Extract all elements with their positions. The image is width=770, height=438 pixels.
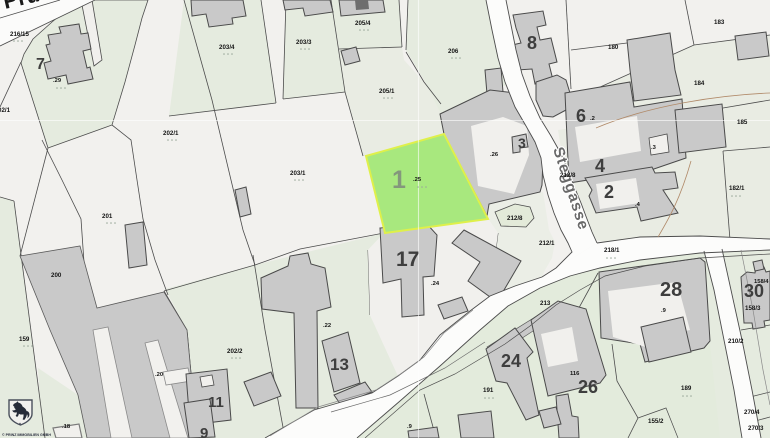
svg-text:.26: .26 [490, 152, 499, 158]
svg-text:.2: .2 [590, 116, 595, 122]
svg-text:216/15: 216/15 [10, 31, 29, 38]
svg-text:4: 4 [595, 156, 605, 176]
svg-text:2: 2 [604, 182, 614, 202]
svg-text:.3: .3 [651, 145, 657, 151]
svg-text:201: 201 [102, 213, 113, 220]
svg-text:02/1: 02/1 [0, 107, 11, 114]
svg-text:158/4: 158/4 [754, 279, 769, 285]
svg-text:212/8: 212/8 [560, 172, 576, 179]
svg-text:8: 8 [527, 33, 537, 53]
svg-text:270/4: 270/4 [744, 409, 760, 416]
svg-text:200: 200 [51, 272, 62, 279]
svg-text:.18: .18 [62, 424, 71, 430]
svg-text:205/1: 205/1 [379, 88, 395, 95]
svg-text:6: 6 [576, 106, 586, 126]
svg-text:© PRINZ IMMOBILIEN GMBH: © PRINZ IMMOBILIEN GMBH [2, 433, 51, 437]
svg-text:.9: .9 [407, 424, 413, 430]
svg-text:183: 183 [714, 19, 725, 26]
svg-text:.25: .25 [413, 177, 422, 183]
svg-text:189: 189 [681, 385, 692, 392]
svg-text:155/2: 155/2 [648, 418, 664, 425]
svg-text:218/1: 218/1 [604, 247, 620, 254]
svg-text:13: 13 [330, 355, 349, 374]
svg-text:11: 11 [208, 394, 224, 411]
svg-text:.9: .9 [661, 308, 667, 314]
svg-text:.24: .24 [431, 281, 440, 287]
svg-text:203/3: 203/3 [296, 39, 312, 46]
svg-text:202/1: 202/1 [163, 130, 179, 137]
svg-text:206: 206 [448, 48, 459, 55]
svg-text:17: 17 [396, 248, 419, 271]
svg-text:1: 1 [392, 166, 406, 194]
svg-text:28: 28 [660, 279, 682, 301]
svg-text:116: 116 [570, 371, 580, 377]
svg-text:159: 159 [19, 336, 30, 343]
svg-text:203/4: 203/4 [219, 44, 235, 51]
svg-text:26: 26 [578, 377, 598, 397]
svg-text:213: 213 [540, 300, 551, 307]
svg-text:.20: .20 [155, 372, 163, 378]
svg-text:203/1: 203/1 [290, 170, 306, 177]
svg-text:212/1: 212/1 [539, 240, 555, 247]
svg-text:212/8: 212/8 [507, 215, 523, 222]
svg-text:185: 185 [737, 119, 748, 126]
svg-text:182/1: 182/1 [729, 185, 745, 192]
svg-text:205/4: 205/4 [355, 20, 371, 27]
svg-text:202/2: 202/2 [227, 348, 243, 355]
svg-text:7: 7 [36, 56, 45, 73]
svg-text:24: 24 [501, 351, 521, 371]
svg-text:9: 9 [200, 425, 208, 438]
svg-text:180: 180 [608, 44, 619, 51]
svg-text:270/3: 270/3 [748, 425, 764, 432]
svg-text:.29: .29 [53, 78, 62, 84]
svg-text:184: 184 [694, 80, 705, 87]
svg-text:.4: .4 [635, 202, 641, 208]
svg-text:3: 3 [518, 135, 526, 151]
svg-text:158/3: 158/3 [745, 305, 761, 312]
svg-text:210/2: 210/2 [728, 338, 744, 345]
svg-text:191: 191 [483, 387, 494, 394]
svg-text:.22: .22 [323, 323, 331, 329]
